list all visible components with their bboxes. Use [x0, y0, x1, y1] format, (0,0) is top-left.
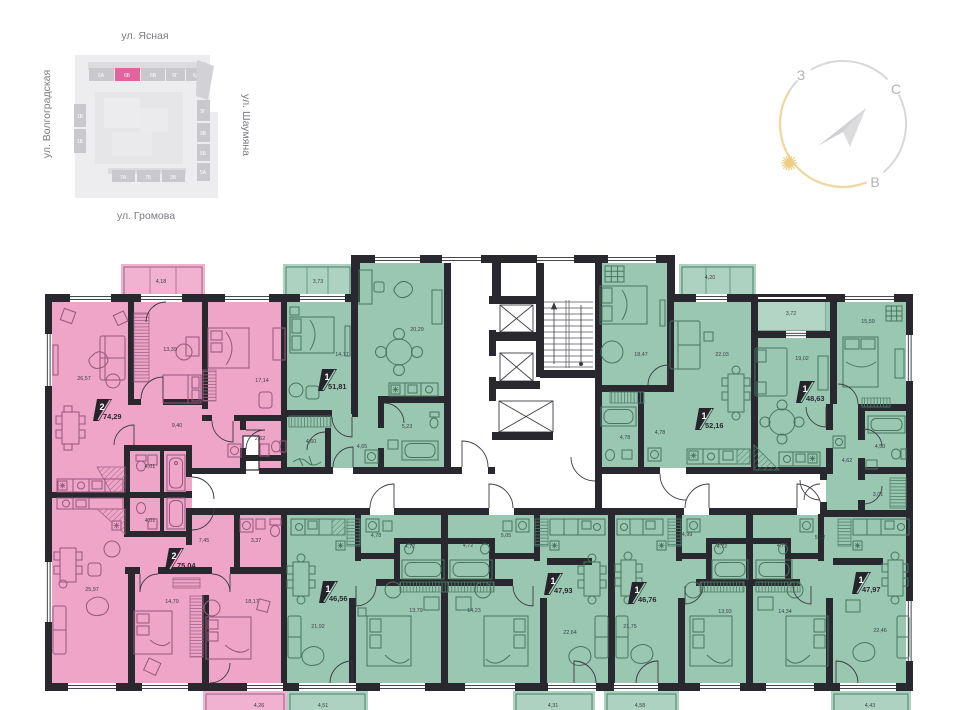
- svg-text:4,60: 4,60: [306, 439, 317, 445]
- svg-text:5,05: 5,05: [501, 533, 512, 539]
- svg-text:5А: 5А: [200, 170, 207, 176]
- svg-text:4,58: 4,58: [635, 703, 646, 709]
- svg-text:46,56: 46,56: [329, 594, 348, 603]
- svg-text:4,72: 4,72: [405, 544, 416, 550]
- svg-text:1: 1: [324, 372, 329, 382]
- svg-text:3,37: 3,37: [251, 538, 262, 544]
- svg-text:46,76: 46,76: [638, 595, 657, 604]
- svg-text:ул. Волгоградская: ул. Волгоградская: [41, 70, 53, 158]
- svg-text:3В: 3В: [170, 175, 177, 181]
- svg-text:5,23: 5,23: [402, 424, 413, 430]
- svg-text:С: С: [891, 81, 901, 97]
- svg-text:2: 2: [99, 402, 104, 412]
- svg-text:4,65: 4,65: [357, 444, 368, 450]
- svg-text:7А: 7А: [120, 175, 127, 181]
- svg-text:47,93: 47,93: [554, 586, 573, 595]
- svg-text:3,01: 3,01: [873, 492, 884, 498]
- svg-text:47,97: 47,97: [862, 585, 881, 594]
- svg-text:9В: 9В: [200, 131, 207, 137]
- svg-text:13,79: 13,79: [409, 608, 423, 614]
- svg-text:4,20: 4,20: [705, 275, 716, 281]
- svg-text:1: 1: [858, 575, 863, 585]
- svg-text:2,62: 2,62: [255, 436, 266, 442]
- svg-text:4,72: 4,72: [777, 543, 788, 549]
- svg-text:18,17: 18,17: [245, 599, 259, 605]
- svg-text:74,29: 74,29: [103, 412, 122, 421]
- svg-text:14,77: 14,77: [335, 352, 349, 358]
- svg-text:4,78: 4,78: [371, 533, 382, 539]
- svg-text:1: 1: [701, 411, 706, 421]
- svg-text:1: 1: [550, 576, 555, 586]
- svg-text:4,72: 4,72: [463, 543, 474, 549]
- svg-text:6А: 6А: [98, 73, 105, 79]
- svg-text:21,75: 21,75: [623, 624, 637, 630]
- svg-text:1Б: 1Б: [77, 139, 84, 145]
- svg-text:1: 1: [634, 585, 639, 595]
- svg-text:22,03: 22,03: [715, 352, 729, 358]
- svg-text:48,63: 48,63: [806, 394, 825, 403]
- svg-text:52,16: 52,16: [705, 421, 724, 430]
- svg-text:4,62: 4,62: [842, 458, 853, 464]
- svg-text:3,73: 3,73: [313, 279, 324, 285]
- svg-text:26,57: 26,57: [77, 376, 91, 382]
- svg-text:19,02: 19,02: [795, 356, 809, 362]
- svg-text:4,78: 4,78: [620, 435, 631, 441]
- svg-text:18,47: 18,47: [634, 352, 648, 358]
- svg-text:14,23: 14,23: [467, 608, 481, 614]
- svg-text:6В: 6В: [150, 73, 157, 79]
- svg-text:21,92: 21,92: [311, 624, 325, 630]
- svg-text:В: В: [870, 174, 879, 190]
- svg-text:17,14: 17,14: [255, 378, 269, 384]
- svg-text:7Б: 7Б: [145, 175, 152, 181]
- svg-text:6Г: 6Г: [172, 73, 178, 79]
- svg-text:ул. Шаумяна: ул. Шаумяна: [240, 94, 252, 156]
- svg-text:1В: 1В: [77, 114, 84, 120]
- svg-text:ул. Ясная: ул. Ясная: [121, 30, 168, 42]
- svg-text:4,01: 4,01: [145, 464, 156, 470]
- svg-text:51,81: 51,81: [328, 382, 347, 391]
- svg-text:4,51: 4,51: [318, 703, 329, 709]
- svg-text:5Б: 5Б: [200, 151, 207, 157]
- svg-text:4,26: 4,26: [254, 703, 265, 709]
- svg-text:1: 1: [802, 384, 807, 394]
- svg-text:22,46: 22,46: [873, 628, 887, 634]
- svg-text:20,29: 20,29: [410, 327, 424, 333]
- svg-text:4,72: 4,72: [717, 544, 728, 550]
- svg-text:4,78: 4,78: [655, 430, 666, 436]
- svg-text:З: З: [797, 67, 805, 83]
- svg-text:7,45: 7,45: [199, 538, 210, 544]
- svg-text:6Б: 6Б: [124, 73, 131, 79]
- svg-text:15,59: 15,59: [861, 319, 875, 325]
- svg-text:ул. Громова: ул. Громова: [117, 210, 175, 222]
- svg-text:4,53: 4,53: [875, 444, 886, 450]
- svg-text:4,31: 4,31: [548, 703, 559, 709]
- svg-text:1: 1: [325, 584, 330, 594]
- svg-text:4,01: 4,01: [145, 518, 156, 524]
- svg-text:3,72: 3,72: [786, 311, 797, 317]
- svg-text:13,39: 13,39: [163, 347, 177, 353]
- svg-text:9Г: 9Г: [200, 109, 206, 115]
- svg-text:4,18: 4,18: [156, 279, 167, 285]
- svg-text:4,99: 4,99: [682, 532, 693, 538]
- svg-text:25,97: 25,97: [85, 587, 99, 593]
- svg-text:13,93: 13,93: [718, 609, 732, 615]
- svg-text:75,04: 75,04: [177, 561, 196, 570]
- svg-text:4,43: 4,43: [865, 703, 876, 709]
- svg-text:22,64: 22,64: [563, 630, 577, 636]
- svg-text:2: 2: [171, 551, 176, 561]
- svg-text:14,79: 14,79: [165, 599, 179, 605]
- svg-text:9,40: 9,40: [172, 423, 183, 429]
- svg-text:5,12: 5,12: [815, 535, 826, 541]
- svg-text:14,34: 14,34: [778, 609, 792, 615]
